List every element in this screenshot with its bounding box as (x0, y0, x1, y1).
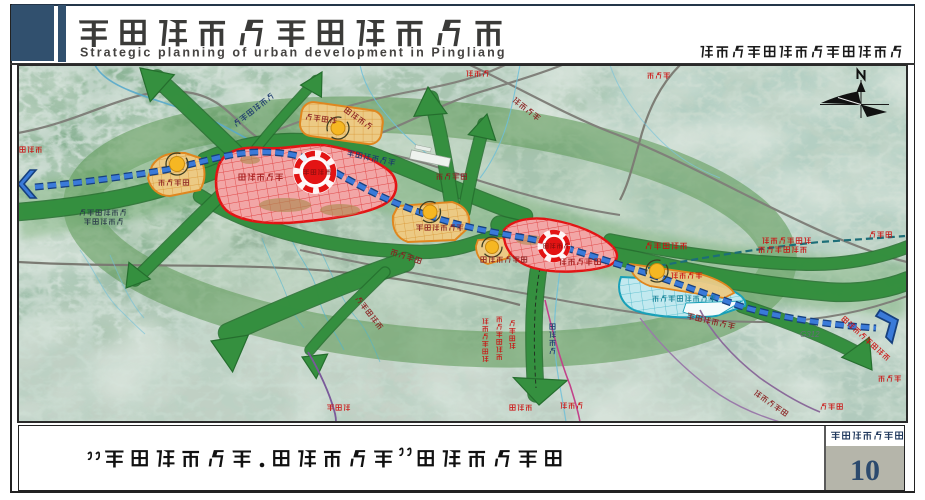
svg-text:10: 10 (850, 454, 880, 487)
